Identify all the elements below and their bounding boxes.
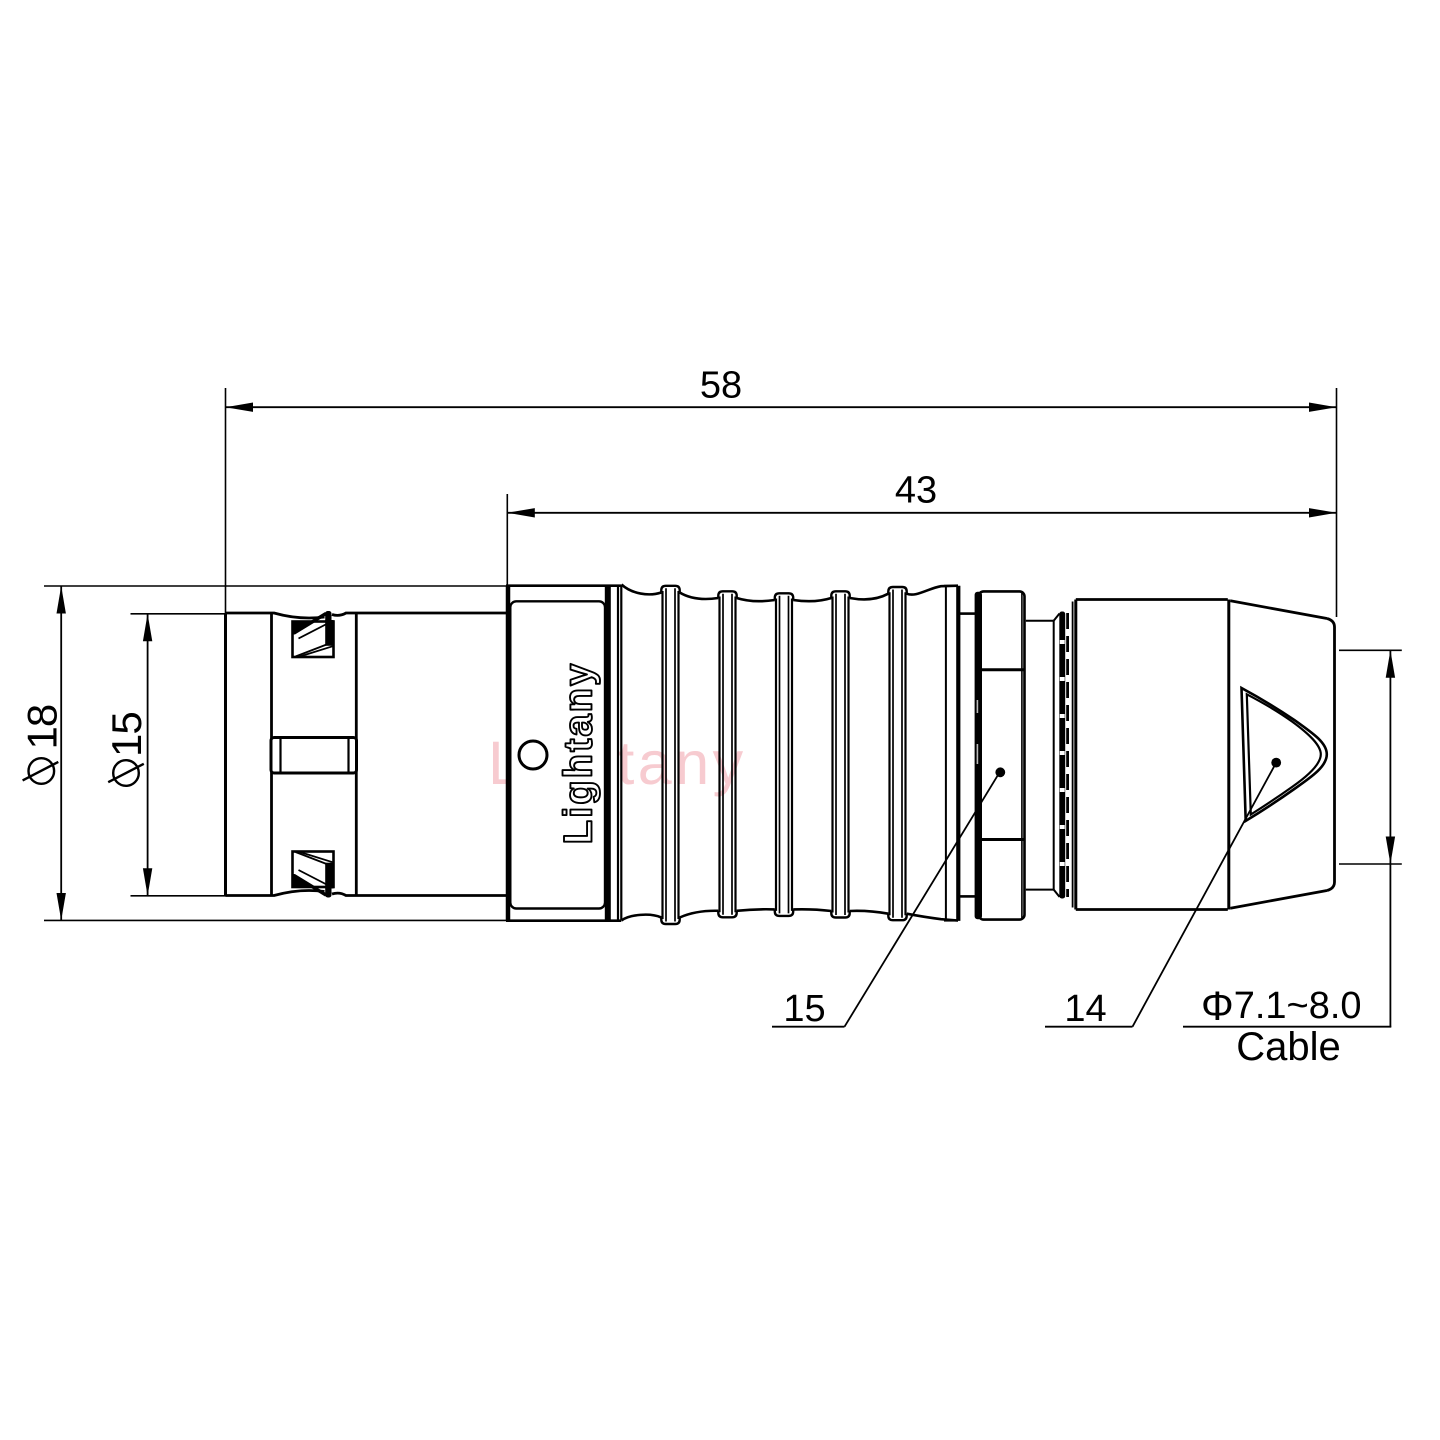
svg-text:14: 14 [1064,988,1106,1030]
svg-text:Φ7.1~8.0: Φ7.1~8.0 [1201,983,1362,1029]
svg-text:43: 43 [895,470,937,512]
svg-text:58: 58 [700,365,742,407]
svg-text:15: 15 [783,988,825,1030]
svg-text:18: 18 [19,705,66,750]
svg-text:Lightany: Lightany [557,662,601,845]
svg-text:Cable: Cable [1236,1025,1341,1069]
svg-text:15: 15 [103,712,150,757]
